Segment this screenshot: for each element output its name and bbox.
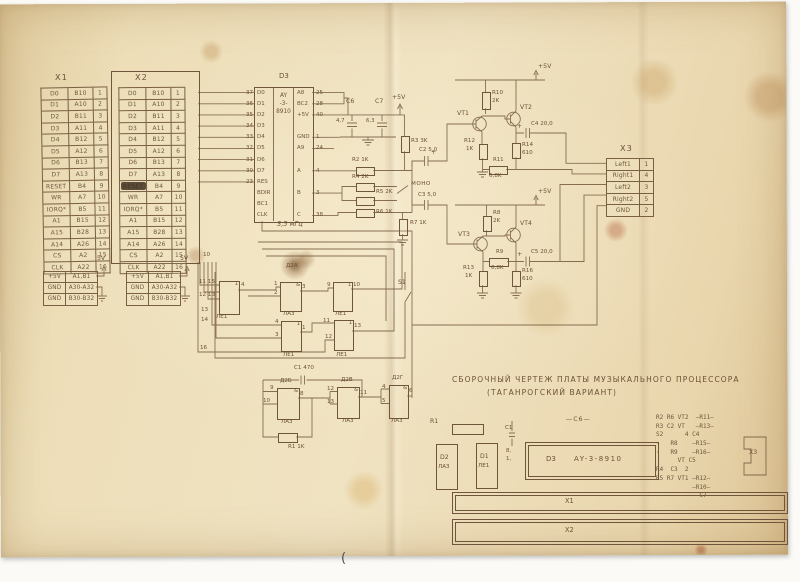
power-row: GND B30-B32 — [44, 294, 98, 305]
r9-value: 6,8K — [491, 266, 504, 272]
d3-right-pin — [295, 154, 332, 165]
ground-symbol — [477, 158, 488, 177]
x2-pin: B15 — [147, 215, 172, 227]
x2-signal: D6 — [120, 158, 147, 170]
gate-symbol: & — [294, 388, 298, 394]
bus-label: 14 — [201, 318, 208, 324]
d3-pin-label: GND — [295, 134, 313, 140]
bus-label: 13 — [201, 308, 208, 314]
gate-type: ЛЕ1 — [283, 353, 294, 359]
board-map-line: S2 4 C4 — [656, 431, 714, 440]
gate-symbol: & — [403, 385, 407, 391]
gate-ref: Д2Б — [280, 379, 292, 385]
x1-signal: D7 — [43, 169, 70, 181]
d3-pin-number: 35 — [240, 112, 255, 118]
gate-type: ЛЕ1 — [336, 353, 347, 359]
x1-pin: B4 — [70, 180, 95, 192]
gate-pin: 5 — [382, 399, 386, 405]
x1-pin: A10 — [69, 99, 94, 111]
gate-pin: 8 — [300, 392, 304, 398]
d3-pin-number: 28 — [313, 101, 332, 107]
gate-pin: 6 — [409, 389, 413, 395]
resistor-r7 — [399, 219, 408, 236]
x2-signal: CS — [120, 250, 147, 262]
x3-num: 3 — [640, 182, 654, 194]
x1-pin: B5 — [70, 204, 95, 216]
gate-type: ЛЕ1 — [216, 315, 227, 321]
x2-num: 2 — [171, 99, 185, 111]
d3-left-pin: BDIR — [240, 187, 276, 198]
gate-pin: 10 — [263, 399, 270, 405]
bus-label: 11 15 — [199, 280, 215, 286]
x3-signal: Right2 — [607, 194, 640, 206]
x2-signal: WR — [120, 192, 147, 204]
scanned-schematic-page: X1 D0 B10 1 D1 A10 2 D2 B11 3 D3 A11 4 D… — [0, 0, 800, 582]
power-net: GND — [44, 294, 66, 305]
resistor-r1 — [278, 433, 298, 443]
x1-signal: D4 — [42, 134, 69, 146]
d3-right-pins: A8 25 BC2 28 +5V 40 GND 1 A9 24 A 4 B — [295, 87, 332, 221]
power-row: +5V A1,B1 — [127, 272, 181, 283]
d3-pin-label: A9 — [295, 145, 313, 151]
d3-name-line: 8910 — [275, 108, 292, 116]
logic-gate-g8: & — [389, 385, 409, 419]
resistor-r8 — [483, 216, 492, 232]
x1-pin: A12 — [69, 146, 94, 158]
x2-num: 7 — [172, 157, 186, 169]
x2-pin: A7 — [147, 192, 172, 204]
power-net: GND — [127, 294, 149, 305]
x1-signal: RESET — [43, 181, 70, 193]
d3-pin-label: D3 — [255, 123, 276, 129]
d3-pin-number: 4 — [313, 168, 332, 174]
clock-frequency-label: 3,5 мГц — [277, 221, 303, 228]
x1-num: 9 — [95, 180, 109, 192]
vcc-label: +5V — [392, 95, 405, 102]
x2-signal: D2 — [120, 111, 147, 123]
gate-ref: Д2В — [341, 378, 353, 384]
x3-signal: Right1 — [607, 171, 640, 183]
x2-row: D5 A12 6 — [120, 146, 186, 158]
d3-right-pin: +5V 40 — [295, 109, 332, 120]
x1-num: 16 — [96, 261, 110, 273]
x2-num: 14 — [172, 238, 186, 250]
r1-label: R1 1K — [288, 445, 304, 451]
d3-pin-number: 30 — [240, 168, 255, 174]
x2-row: D1 A10 2 — [119, 99, 185, 111]
c6-value: 4,7 — [336, 119, 345, 125]
r12-label: R12 — [464, 139, 475, 145]
power-pins: A1,B1 — [66, 272, 98, 283]
x2-row: D0 B10 1 — [119, 88, 185, 100]
power-left-arrow-label: 5V — [97, 256, 105, 263]
x1-signal: CS — [44, 250, 71, 262]
power-pins: A30-A32 — [149, 283, 181, 294]
logic-gate-g1: 1 — [219, 281, 240, 315]
d3-pin-number: 23 — [240, 179, 255, 185]
d3-name: AY-3-8910 — [275, 92, 292, 116]
power-pins: B30-B32 — [149, 294, 181, 305]
d3-right-pin: A8 25 — [295, 87, 332, 98]
x2-num: 11 — [172, 204, 186, 216]
vt3-label: VT3 — [458, 232, 470, 239]
power-left-table: +5V A1,B1 GND A30-A32 GND B30-B32 — [43, 271, 98, 306]
power-row: +5V A1,B1 — [44, 272, 98, 283]
gate-pin: 1 — [302, 326, 306, 332]
c4-label: C4 20,0 — [531, 122, 553, 128]
pen-mark: ( — [341, 552, 346, 566]
x2-signal: D5 — [120, 146, 147, 158]
x3-num: 5 — [640, 194, 654, 206]
gate-pin: 4 — [382, 385, 386, 391]
x1-pin: B13 — [70, 157, 95, 169]
d3-pin-number: 1 — [313, 134, 332, 140]
vt2-label: VT2 — [520, 105, 532, 112]
gate-symbol: 1 — [235, 281, 238, 287]
d3-left-pin: BC1 — [240, 199, 276, 210]
transistor-vt3 — [470, 236, 487, 262]
x2-row: A14 A26 14 — [120, 238, 186, 250]
board-d2-outline: D2 ЛА3 — [436, 444, 458, 490]
x3-signal: Left2 — [607, 182, 640, 194]
r7-label: R7 1K — [410, 221, 426, 227]
board-c1-mark: 1, — [506, 457, 511, 463]
x2-num: 9 — [172, 181, 186, 193]
d3-left-pin: 30 D7 — [240, 165, 276, 176]
logic-gate-g7: & — [337, 387, 360, 419]
c6-label: C6 — [346, 99, 354, 106]
board-map-line: R5 R7 VT1 —R12— — [656, 475, 714, 484]
resistor-r16 — [512, 271, 521, 287]
x2-pin: A12 — [147, 146, 172, 158]
gate-symbol: 1 — [349, 320, 352, 326]
gate-pin: 4 — [241, 283, 245, 289]
board-d3-outline: D3 AY-3-8910 — [525, 442, 659, 480]
x1-pin: B11 — [69, 111, 94, 123]
x2-signal: D7 — [120, 169, 147, 181]
d3-left-pin: 35 D2 — [240, 109, 276, 120]
x2-signal: A15 — [120, 227, 147, 239]
r8-label: R8 — [493, 211, 500, 217]
board-d3-ref: D3 — [546, 456, 556, 463]
x3-title: X3 — [620, 144, 633, 153]
gate-pin: 12 — [327, 387, 334, 393]
board-map-line: · R8 —R15— — [656, 440, 714, 449]
x3-row: Left1 1 — [607, 159, 654, 171]
gate-pin: 11 — [323, 319, 330, 325]
d3-right-pin — [295, 176, 332, 187]
r9-label: R9 — [496, 250, 503, 256]
x1-pin: A7 — [70, 192, 95, 204]
x1-num: 6 — [94, 145, 108, 157]
d3-pin-label: A — [295, 168, 313, 174]
x2-row: A1 B15 12 — [120, 215, 186, 227]
gate-symbol: & — [354, 387, 358, 393]
power-net: GND — [127, 283, 149, 294]
x1-num: 2 — [94, 99, 108, 111]
x3-row: Left2 3 — [607, 182, 654, 194]
board-d2-ref: D2 — [440, 455, 449, 462]
x1-pin: B15 — [71, 215, 96, 227]
x2-num: 12 — [172, 215, 186, 227]
r10-label: R10 — [492, 91, 503, 97]
board-d1-type: ЛЕ1 — [478, 464, 489, 470]
x1-table: D0 B10 1 D1 A10 2 D2 B11 3 D3 A11 4 D4 B… — [40, 86, 110, 274]
ground-symbol — [340, 137, 396, 145]
d3-pin-label: D2 — [255, 112, 276, 118]
board-x1-strip: X1 — [452, 492, 788, 514]
c3-label: C3 5,0 — [418, 193, 436, 199]
x2-row: A15 B28 13 — [120, 227, 186, 239]
x2-pin: B5 — [147, 204, 172, 216]
x1-signal: IORQ* — [43, 204, 70, 216]
board-map-line: · R9 —R16— — [656, 449, 714, 458]
x2-table: D0 B10 1 D1 A10 2 D2 B11 3 D3 A11 4 D4 B… — [118, 87, 186, 274]
gate-pin: 1 — [274, 282, 278, 288]
board-d2-type: ЛА3 — [438, 465, 450, 471]
x2-pin: A11 — [147, 123, 172, 135]
x1-num: 5 — [94, 134, 108, 146]
gate-pin: 9 — [270, 386, 274, 392]
c5-label: C5 20,0 — [531, 250, 553, 256]
x3-row: GND 2 — [607, 205, 654, 217]
d3-pin-label: D5 — [255, 145, 276, 151]
d3-pin-number: 36 — [240, 101, 255, 107]
power-net: +5V — [44, 272, 66, 283]
c5-polarity: + — [517, 252, 522, 259]
c2-polarity: + — [431, 150, 436, 157]
x2-signal: A1 — [120, 216, 147, 228]
x3-num: 2 — [640, 205, 654, 217]
board-map-line: R4 C3 2 — [656, 466, 714, 475]
x3-signal: GND — [607, 205, 640, 217]
x2-signal: D4 — [120, 134, 147, 146]
drawing-title-line1: СБОРОЧНЫЙ ЧЕРТЕЖ ПЛАТЫ МУЗЫКАЛЬНОГО ПРОЦ… — [452, 376, 740, 384]
gate-pin: 3 — [302, 285, 306, 291]
gate-pin: 11 — [360, 391, 367, 397]
d3-pin-number: 32 — [240, 145, 255, 151]
capacitor-c2-symbol — [412, 124, 470, 166]
board-d3-name: AY-3-8910 — [574, 456, 623, 463]
power-net: GND — [44, 283, 66, 294]
r13-value: 1K — [465, 274, 472, 280]
d3-right-pin: A9 24 — [295, 143, 332, 154]
r2-label: R2 1K — [352, 158, 368, 164]
board-map-line: VT C5 — [656, 457, 714, 466]
x2-title: X2 — [135, 73, 148, 82]
x3-row: Right2 5 — [607, 194, 654, 206]
s1-label: S1 — [398, 280, 406, 287]
r11-label: R11 — [493, 158, 504, 164]
x2-row: D4 B12 5 — [120, 134, 186, 146]
d3-right-pin: B 3 — [295, 187, 332, 198]
x3-num: 1 — [640, 159, 654, 171]
gate-symbol: 1 — [348, 282, 351, 288]
x2-row: D3 A11 4 — [120, 123, 186, 135]
gate-type: ЛА3 — [283, 312, 295, 318]
r14-value: 610 — [522, 151, 533, 157]
x1-pin: B12 — [69, 134, 94, 146]
bus-label: 12 13 — [199, 293, 215, 299]
x1-signal: WR — [43, 192, 70, 204]
gate-type: ЛА3 — [342, 419, 354, 425]
r8-value: 2K — [493, 219, 500, 225]
logic-gate-g4: 1 — [281, 321, 302, 352]
x1-num: 13 — [96, 227, 110, 239]
x2-pin: B13 — [147, 157, 172, 169]
vt4-label: VT4 — [520, 221, 532, 228]
resistor-r3 — [401, 136, 410, 153]
power-right-table: +5V A1,B1 GND A30-A32 GND B30-B32 — [126, 271, 181, 306]
gate-ref: Д2Г — [392, 376, 403, 382]
mono-label: МОНО — [411, 182, 431, 188]
x1-signal: D1 — [42, 100, 69, 112]
d3-left-pin: 36 D1 — [240, 98, 276, 109]
d3-pin-number: 31 — [240, 157, 255, 163]
d3-right-pin: A 4 — [295, 165, 332, 176]
gate-type: ЛЕ1 — [335, 312, 346, 318]
board-c1-label: C1 — [505, 426, 512, 432]
x1-num: 14 — [96, 238, 110, 250]
d3-right-pin: BC2 28 — [295, 98, 332, 109]
d3-pin-number: 40 — [313, 112, 332, 118]
d3-pin-label: BDIR — [255, 190, 276, 196]
x1-pin: A26 — [71, 238, 96, 250]
gate-pin: 4 — [275, 320, 279, 326]
capacitor-c6-symbol — [347, 115, 357, 137]
x2-num: 13 — [172, 227, 186, 239]
board-x2-label: X2 — [565, 527, 574, 534]
resistor-r12 — [479, 144, 488, 160]
power-row: GND A30-A32 — [44, 283, 98, 294]
power-pins: A1,B1 — [149, 272, 181, 283]
x2-row: IORQ* B5 11 — [120, 204, 186, 216]
x2-pin: B10 — [146, 88, 171, 100]
x1-signal: D2 — [42, 111, 69, 123]
bus-label: 10 — [203, 253, 210, 259]
d3-right-pin — [295, 120, 332, 131]
board-map-line: —R10— — [656, 484, 714, 493]
x1-title: X1 — [55, 73, 68, 82]
d3-ref: D3 — [279, 73, 289, 80]
board-component-map: R2 R6 VT2 —R11—R3 C2 VT —R13—S2 4 C4· R8… — [656, 414, 714, 501]
x3-table: Left1 1 Right1 4 Left2 3 Right2 5 GND 2 — [606, 158, 654, 217]
x1-signal: A1 — [44, 216, 71, 228]
chip-d3-divider — [293, 87, 294, 221]
r10-value: 2K — [492, 99, 499, 105]
x1-pin: A13 — [70, 169, 95, 181]
r16-label: R16 — [522, 269, 533, 275]
x2-pin: B11 — [147, 111, 172, 123]
d3-left-pin: 33 D4 — [240, 132, 276, 143]
c1-label: C1 470 — [294, 366, 314, 372]
x1-signal: D5 — [42, 146, 69, 158]
x1-pin: A2 — [71, 250, 96, 262]
r5-label: R5 2K — [376, 190, 392, 196]
x3-num: 4 — [640, 171, 654, 183]
d3-left-pin: 23 RES — [240, 176, 276, 187]
d3-left-pin: 37 D0 — [240, 87, 276, 98]
x1-num: 12 — [96, 215, 110, 227]
gate-pin: 2 — [274, 291, 278, 297]
resistor-r14 — [512, 143, 521, 159]
x2-num: 1 — [171, 88, 185, 100]
x2-row: CS A2 15 — [120, 250, 186, 262]
d3-pin-label: D4 — [255, 134, 276, 140]
power-row: GND B30-B32 — [127, 294, 181, 305]
x2-num: 4 — [172, 123, 186, 135]
board-c6-label: —C6— — [566, 417, 591, 424]
d3-pin-label: C — [295, 212, 313, 218]
x1-num: 8 — [95, 169, 109, 181]
d3-pin-label: RES — [255, 179, 276, 185]
x2-signal: A14 — [120, 239, 147, 251]
vt1-label: VT1 — [457, 111, 469, 118]
d3-pin-number: 3 — [313, 190, 332, 196]
x1-num: 11 — [95, 203, 109, 215]
d3-pin-label: D1 — [255, 101, 276, 107]
board-x1-label: X1 — [565, 498, 574, 505]
gate-pin: 9 — [327, 283, 331, 289]
r14-label: R14 — [522, 143, 533, 149]
d3-pin-label: D0 — [255, 90, 276, 96]
gate-pin: 12 — [325, 335, 332, 341]
gate-type: ЛА3 — [391, 419, 403, 425]
ink-smudge — [121, 182, 146, 190]
x2-num: 8 — [172, 169, 186, 181]
d3-pin-number: 38 — [313, 212, 332, 218]
x1-num: 1 — [93, 87, 107, 99]
gate-pin: 10 — [353, 283, 360, 289]
x1-signal: D6 — [43, 158, 70, 170]
gate-pin: 13 — [327, 400, 334, 406]
d3-left-pin: 32 D5 — [240, 143, 276, 154]
gate-symbol: & — [296, 282, 300, 288]
gate-pin: 13 — [354, 324, 361, 330]
gate-type: ЛА3 — [281, 420, 293, 426]
x1-pin: B10 — [68, 88, 93, 100]
c7-value: 6,3 — [366, 119, 375, 125]
r3-label: R3 3K — [411, 139, 427, 145]
d3-pin-label: D6 — [255, 157, 276, 163]
x1-num: 4 — [94, 122, 108, 134]
resistor-r13 — [479, 271, 488, 287]
d3-name-line: -3- — [275, 100, 292, 108]
vcc-arrow — [398, 104, 403, 115]
d3-pin-label: B — [295, 190, 313, 196]
d3-right-pin — [295, 199, 332, 210]
amp-bottom-vcc: +5V — [538, 189, 551, 196]
x2-row: D2 B11 3 — [120, 111, 186, 123]
x2-num: 5 — [172, 134, 186, 146]
x3-row: Right1 4 — [607, 171, 654, 183]
x2-row: WR A7 10 — [120, 192, 186, 204]
x2-row: D6 B13 7 — [120, 157, 186, 169]
x2-pin: A10 — [146, 99, 171, 111]
power-net: +5V — [127, 272, 149, 283]
board-map-line: —C7— — [656, 492, 714, 501]
d3-pin-number: 24 — [313, 145, 332, 151]
board-x2-strip: X2 — [452, 519, 788, 545]
board-d1-outline: D1 ЛЕ1 — [476, 443, 498, 489]
board-d1-ref: D1 — [480, 454, 489, 461]
x2-signal: D1 — [119, 100, 146, 112]
x2-pin: B28 — [147, 227, 172, 239]
d3-left-pin: 31 D6 — [240, 154, 276, 165]
board-map-line: R2 R6 VT2 —R11— — [656, 414, 714, 423]
x2-signal: IORQ* — [120, 204, 147, 216]
r13-label: R13 — [463, 266, 474, 272]
